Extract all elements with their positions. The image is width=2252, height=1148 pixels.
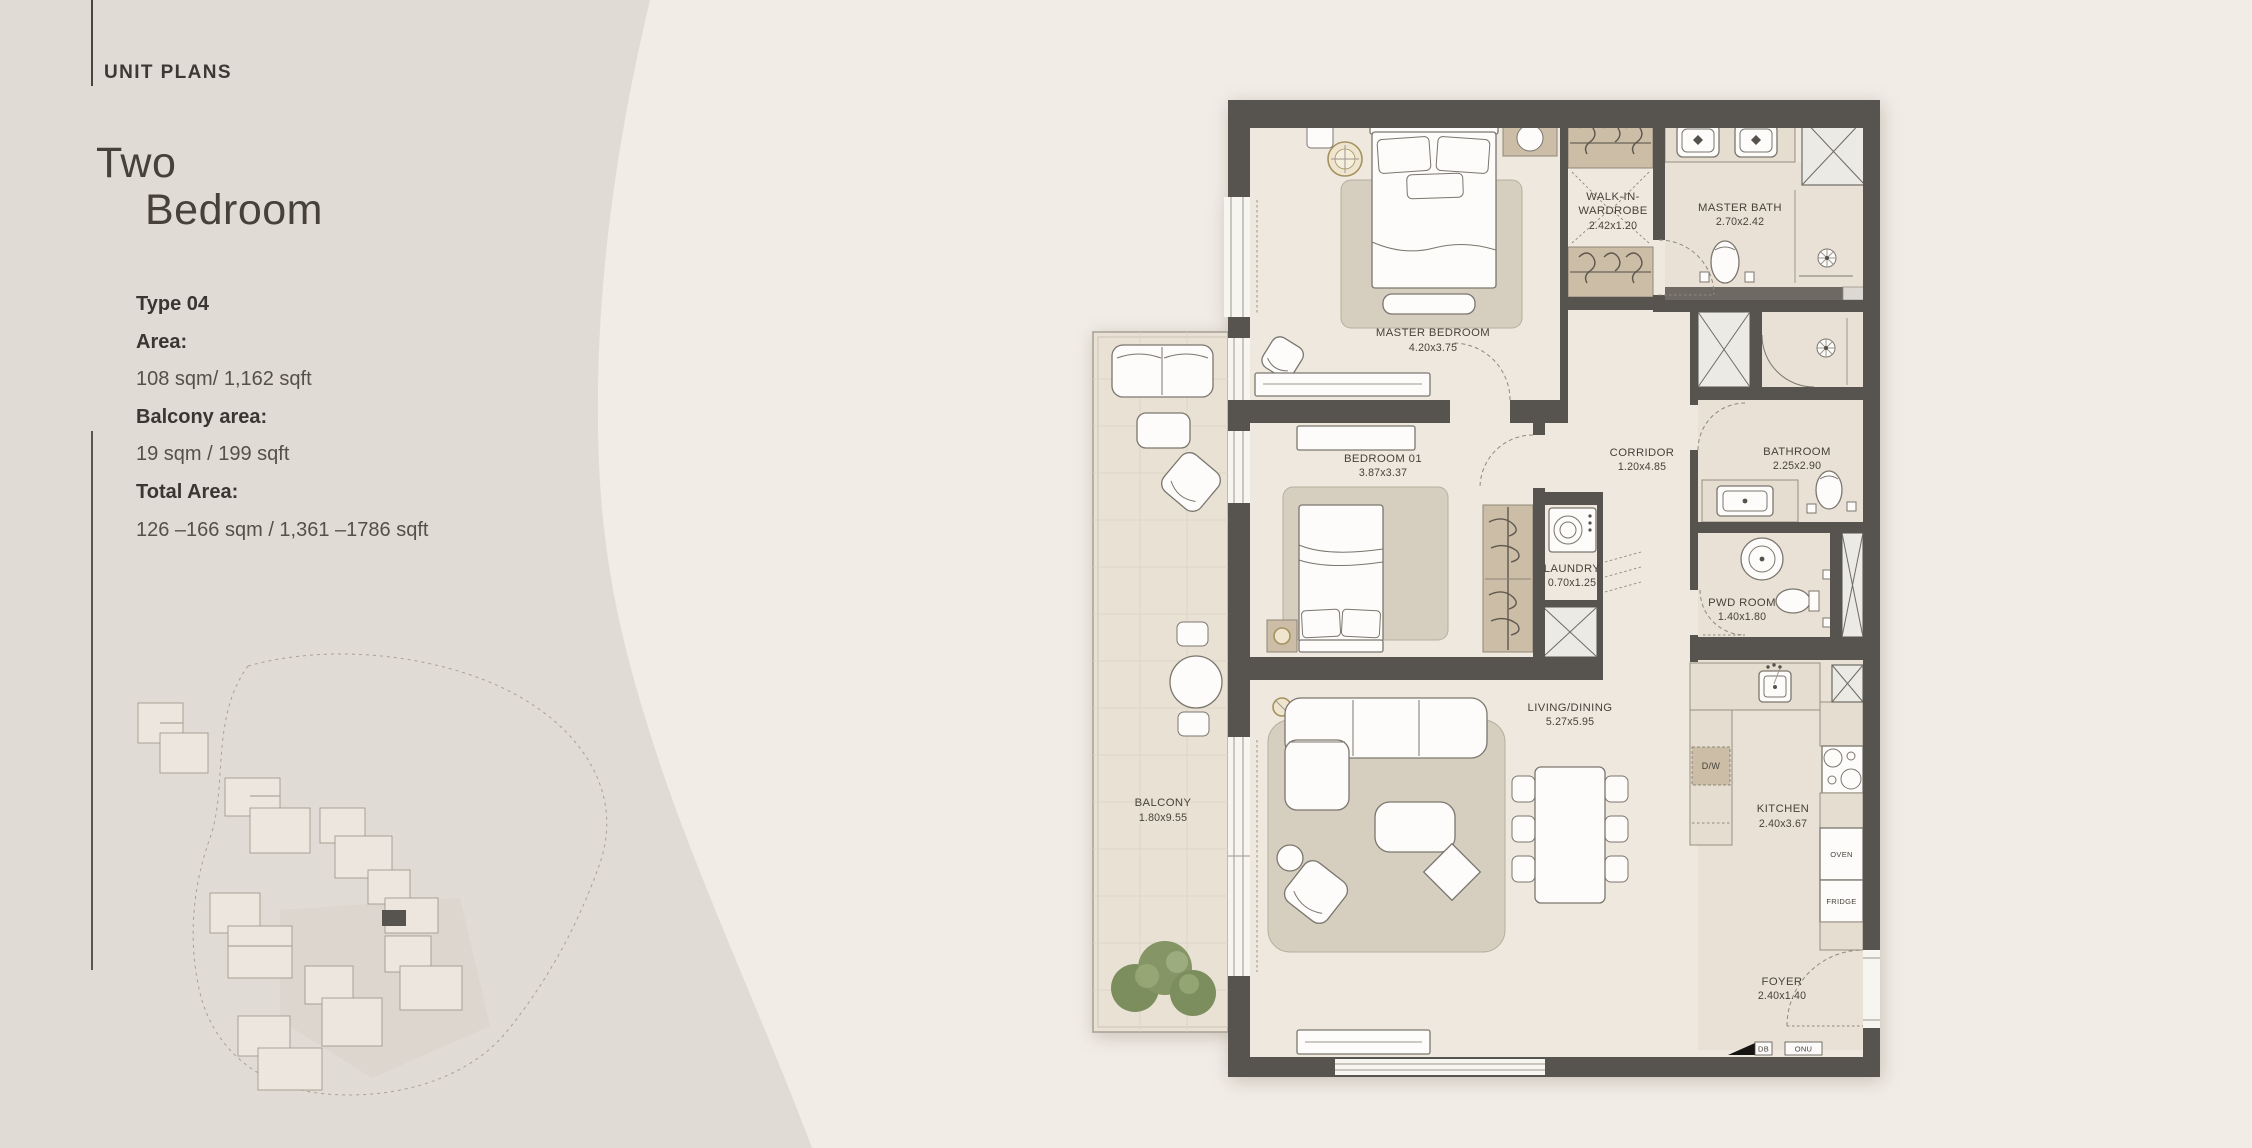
dim-bedroom01: 3.87x3.37	[1359, 467, 1407, 479]
bedroom01-lamp	[1274, 628, 1290, 644]
master-balcony-door	[1228, 338, 1250, 400]
label-master-bath: MASTER BATH	[1698, 202, 1782, 214]
side-rule	[91, 431, 93, 970]
label-kitchen: KITCHEN	[1757, 803, 1809, 815]
bedside-lamp	[1517, 125, 1543, 151]
bedroom01-wardrobe	[1483, 505, 1533, 652]
dining-table	[1535, 767, 1605, 903]
wardrobe-closet-bottom	[1568, 247, 1653, 297]
label-corridor: CORRIDOR	[1610, 447, 1675, 459]
label-pwd: PWD ROOM	[1708, 597, 1776, 609]
dim-living: 5.27x5.95	[1546, 716, 1594, 728]
bedroom01-balcony-door	[1228, 431, 1250, 503]
coffee-table	[1375, 802, 1455, 852]
label-oven: OVEN	[1830, 850, 1852, 859]
spec-type: Type 04	[136, 286, 428, 324]
dim-master-bedroom: 4.20x3.75	[1409, 342, 1457, 354]
hob	[1822, 746, 1863, 793]
dim-balcony: 1.80x9.55	[1139, 812, 1187, 824]
bedroom01-bed	[1299, 505, 1383, 652]
spec-balcony-value: 19 sqm / 199 sqft	[136, 436, 428, 474]
washing-machine	[1549, 508, 1596, 552]
master-window	[1224, 197, 1250, 317]
label-bedroom01: BEDROOM 01	[1344, 453, 1422, 465]
master-bedroom-bed	[1370, 118, 1498, 314]
laundry-shaft	[1543, 607, 1597, 657]
page-title: Two Bedroom	[96, 140, 323, 234]
elevator-shaft	[1698, 312, 1750, 387]
balcony-table	[1137, 413, 1190, 448]
living-rear-window	[1335, 1059, 1545, 1075]
site-plan	[130, 648, 650, 1098]
dim-corridor: 1.20x4.85	[1618, 461, 1666, 473]
dim-wiw: 2.42x1.20	[1589, 220, 1637, 232]
label-wiw-1: WALK-IN-	[1586, 191, 1640, 203]
dim-master-bath: 2.70x2.42	[1716, 216, 1764, 228]
unit-plan-page: { "header": { "section_label": "UNIT PLA…	[0, 0, 2252, 1148]
title-line-2: Bedroom	[96, 187, 323, 234]
db-label: DB	[1758, 1045, 1769, 1054]
section-label: UNIT PLANS	[104, 62, 232, 84]
spec-total-value: 126 –166 sqm / 1,361 –1786 sqft	[136, 512, 428, 550]
shower-floor	[1762, 312, 1863, 387]
label-master-bedroom: MASTER BEDROOM	[1376, 327, 1490, 339]
title-line-1: Two	[96, 139, 176, 187]
label-dishwasher: D/W	[1702, 761, 1721, 771]
shower-tray	[1802, 118, 1865, 185]
spec-total-label: Total Area:	[136, 474, 428, 512]
dim-kitchen: 2.40x3.67	[1759, 818, 1807, 830]
shower-head	[1818, 249, 1836, 267]
living-balcony-door	[1228, 737, 1250, 976]
dim-foyer: 2.40x1.40	[1758, 990, 1806, 1002]
bed-bench	[1383, 294, 1475, 314]
spec-area-label: Area:	[136, 324, 428, 362]
label-laundry: LAUNDRY	[1544, 563, 1601, 575]
label-bathroom: BATHROOM	[1763, 446, 1831, 458]
spec-area-value: 108 sqm/ 1,162 sqft	[136, 361, 428, 399]
label-wiw-2: WARDROBE	[1578, 205, 1647, 217]
floor-plan: DB ONU MASTER BEDROOM 4.20x3.75 WALK-IN-…	[1085, 90, 1885, 1080]
side-table	[1277, 845, 1303, 871]
kitchen-top-shaft	[1832, 665, 1863, 702]
dim-laundry: 0.70x1.25	[1548, 577, 1596, 589]
balcony-round-table	[1170, 656, 1222, 708]
pwd-shaft	[1842, 533, 1863, 637]
spec-balcony-label: Balcony area:	[136, 399, 428, 437]
top-rule	[91, 0, 93, 86]
tv-console	[1297, 1030, 1430, 1054]
label-fridge: FRIDGE	[1826, 897, 1856, 906]
entrance-door-gap	[1863, 950, 1880, 1028]
label-living: LIVING/DINING	[1528, 702, 1613, 714]
onu-label: ONU	[1795, 1045, 1813, 1054]
dim-bathroom: 2.25x2.90	[1773, 460, 1821, 472]
dim-pwd: 1.40x1.80	[1718, 611, 1766, 623]
label-balcony: BALCONY	[1135, 797, 1192, 809]
label-foyer: FOYER	[1762, 976, 1803, 988]
site-highlighted-unit	[382, 910, 406, 926]
unit-specs: Type 04 Area: 108 sqm/ 1,162 sqft Balcon…	[136, 286, 428, 549]
bedroom01-desk	[1297, 426, 1415, 450]
bath-ledge	[1665, 287, 1843, 300]
round-mirror	[1328, 142, 1362, 176]
